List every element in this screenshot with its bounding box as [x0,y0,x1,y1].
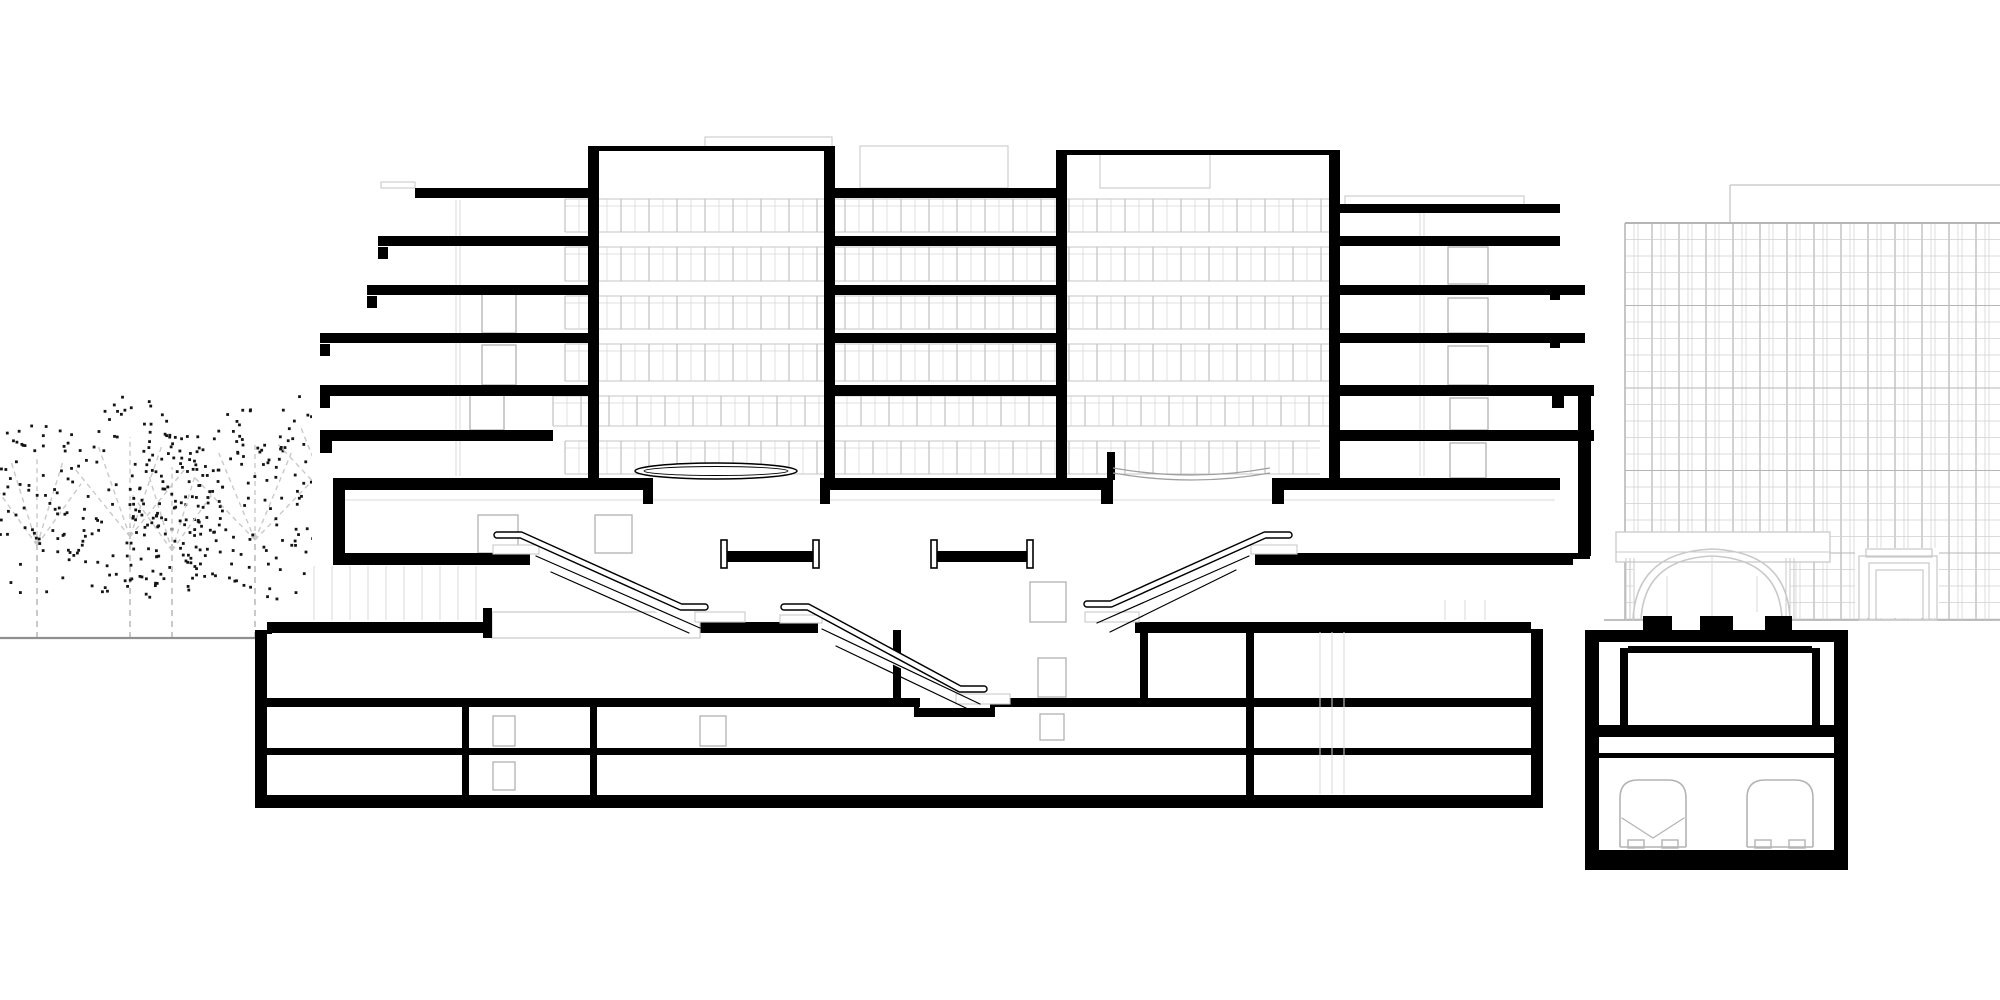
arch-entrance [1616,532,1939,620]
tree [0,425,98,638]
architectural-section-page [0,0,2000,1000]
tunnel-section [1585,612,1848,870]
tree [56,396,203,638]
section-drawing [0,0,2000,1000]
